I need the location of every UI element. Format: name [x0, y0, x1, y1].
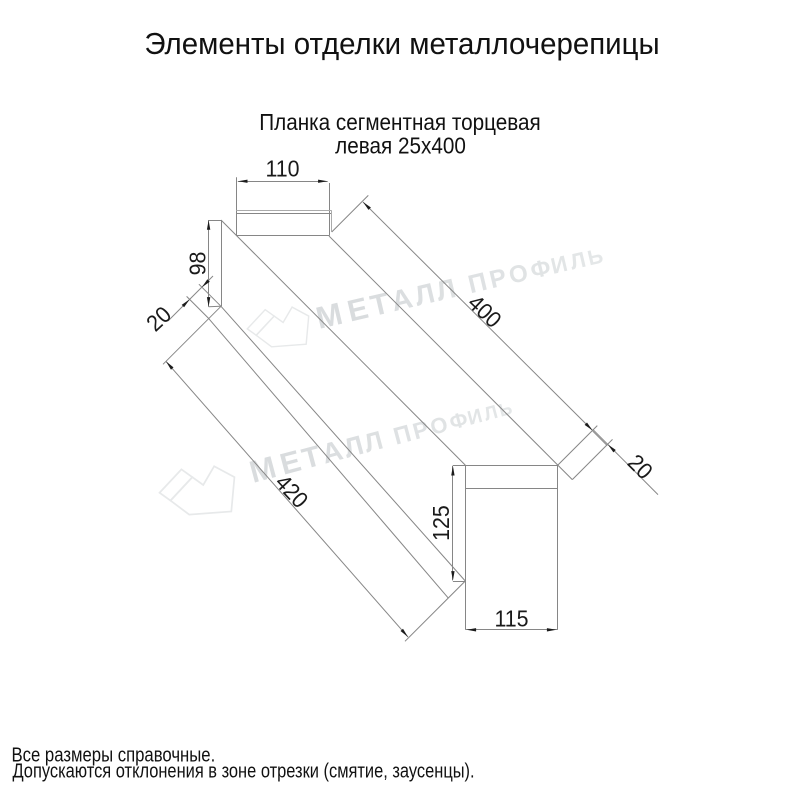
svg-text:Элементы отделки металлочерепи: Элементы отделки металлочерепицы [144, 27, 659, 61]
svg-text:98: 98 [185, 252, 211, 276]
svg-text:115: 115 [494, 606, 528, 632]
svg-text:110: 110 [265, 156, 299, 182]
svg-text:Допускаются отклонения в зоне: Допускаются отклонения в зоне отрезки (с… [13, 759, 475, 782]
svg-text:Планка сегментная торцевая: Планка сегментная торцевая [259, 109, 540, 135]
svg-text:левая 25х400: левая 25х400 [335, 132, 466, 158]
svg-text:125: 125 [428, 505, 454, 541]
